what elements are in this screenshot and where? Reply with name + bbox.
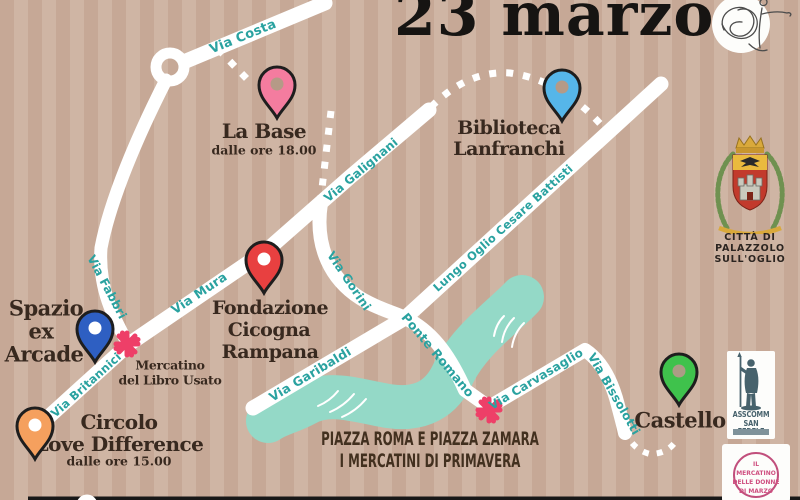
city-crest-caption-line2: PALAZZOLO [705,243,795,254]
market-primavera-line2: I MERCATINI DI PRIMAVERA [340,450,521,472]
venue-circolo-time: dalle ore 15.00 [66,454,171,469]
market-libro-usato-line2: del Libro Usato [119,373,222,388]
asscomm-label-line1: ASSCOMM [730,411,772,419]
donne-label-line3: DELLE DONNE [725,478,788,486]
event-sketch-logo-icon [705,0,800,62]
pin-fondazione-cicogna-rampana [242,238,286,296]
donne-label-line1: IL [725,460,788,468]
venue-fondazione-line1: Fondazione [212,297,328,319]
venue-circolo-line2: Love Difference [35,432,204,456]
city-crest-caption-line3: SULL'OGLIO [705,254,795,265]
venue-la-base-time: dalle ore 18.00 [211,143,316,158]
venue-spazio-line3: Arcade [5,342,84,367]
pin-castello [657,350,701,408]
pin-spazio-ex-arcade [73,307,117,365]
venue-circolo-line1: Circolo [80,410,157,434]
mercatino-donne-badge: IL MERCATINO DELLE DONNE DI MARZO [722,444,790,500]
city-crest-icon [703,134,797,234]
dotted-path-la-base [218,49,247,79]
flyer-map: 23 marzo Via Costa Via Fabbri Via Mura V… [0,0,800,500]
asscomm-bottom-bar [733,429,769,435]
title-date: 23 marzo [394,0,714,46]
market-asterisk-libro-usato [116,333,138,355]
dotted-path-galignani [321,111,331,197]
donne-label-line2: MERCATINO [725,469,788,477]
donne-label-line4: DI MARZO [725,487,788,495]
venue-fondazione-line3: Rampana [222,341,319,363]
bottom-strip [28,497,800,500]
venue-la-base-name: La Base [222,119,306,143]
soldier-icon [727,351,775,411]
city-crest-caption-line1: CITTÀ DI [705,232,795,243]
market-libro-usato-line1: Mercatino [135,358,204,373]
venue-biblioteca-line2: Lanfranchi [453,138,564,160]
asscomm-san-fedele-badge: ASSCOMM SAN FEDELE [727,351,775,439]
roundabout [156,53,184,81]
market-primavera-line1: PIAZZA ROMA E PIAZZA ZAMARA [321,428,539,450]
pin-biblioteca-lanfranchi [540,66,584,124]
venue-fondazione-line2: Cicogna [228,319,311,341]
venue-spazio-line2: ex [29,319,54,344]
pin-circolo-love-difference [13,404,57,462]
pin-la-base [255,63,299,121]
venue-castello-name: Castello [634,408,725,433]
